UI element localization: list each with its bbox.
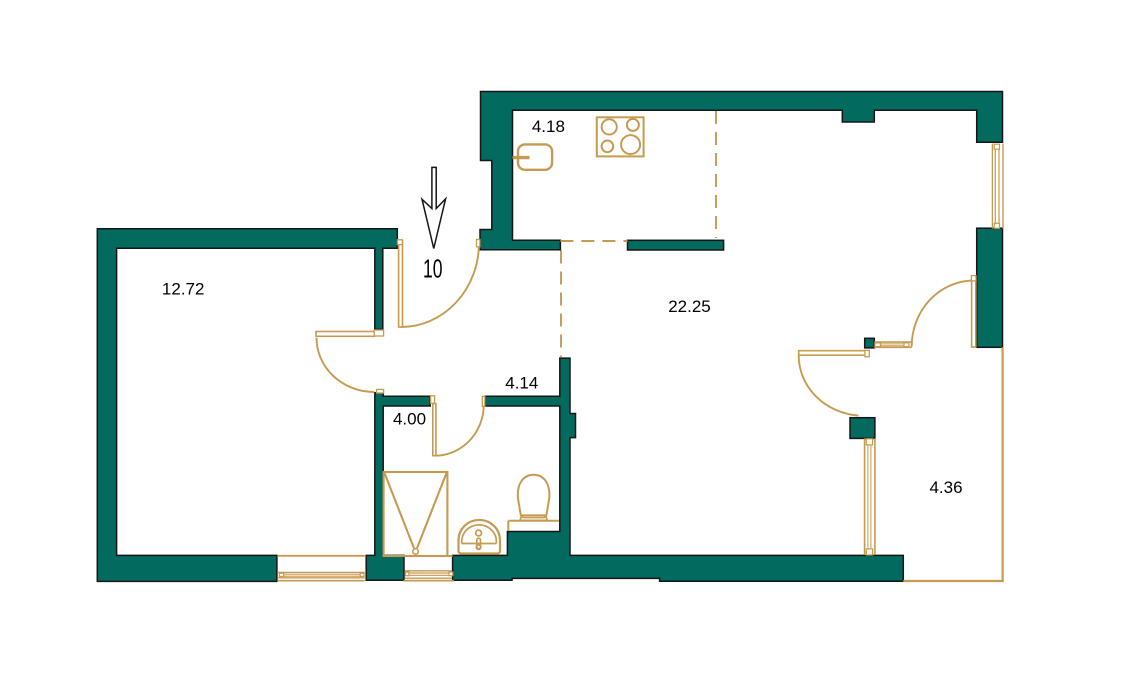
svg-text:4.14: 4.14 — [505, 373, 538, 392]
svg-text:12.72: 12.72 — [162, 280, 205, 299]
svg-text:22.25: 22.25 — [668, 297, 711, 316]
svg-text:4.36: 4.36 — [929, 478, 962, 497]
svg-text:4.00: 4.00 — [393, 409, 426, 428]
svg-text:10: 10 — [423, 253, 443, 283]
svg-text:4.18: 4.18 — [532, 117, 565, 136]
